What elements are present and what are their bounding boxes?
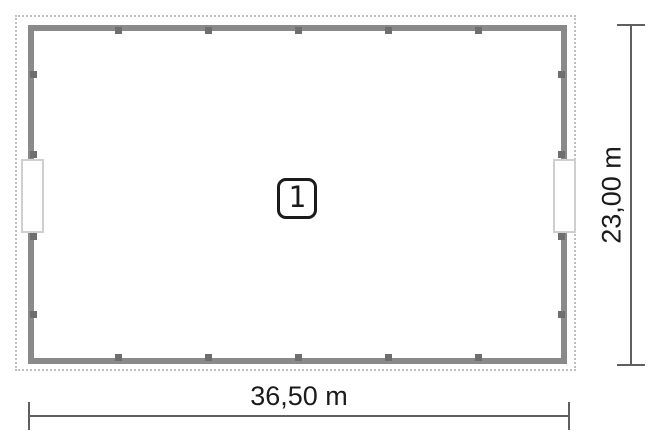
room-number-badge: 1 — [277, 178, 317, 219]
column-marker — [115, 27, 122, 34]
column-marker — [558, 233, 565, 240]
column-marker — [115, 354, 122, 361]
column-marker — [475, 354, 482, 361]
floor-plan-canvas: 1 36,50 m 23,00 m — [0, 0, 660, 444]
column-marker — [475, 27, 482, 34]
width-dimension-label: 36,50 m — [29, 381, 569, 412]
column-marker — [205, 27, 212, 34]
column-marker — [30, 233, 37, 240]
column-marker — [558, 151, 565, 158]
column-marker — [558, 71, 565, 78]
height-dimension-tick-bottom — [617, 364, 645, 366]
column-marker — [385, 354, 392, 361]
column-marker — [295, 27, 302, 34]
gate-opening-left — [21, 159, 44, 233]
column-marker — [205, 354, 212, 361]
column-marker — [30, 311, 37, 318]
column-marker — [385, 27, 392, 34]
room-number-label: 1 — [288, 183, 305, 212]
column-marker — [30, 151, 37, 158]
column-marker — [30, 71, 37, 78]
height-dimension-label: 23,00 m — [597, 146, 628, 244]
gate-opening-right — [553, 159, 576, 233]
height-dimension-line — [630, 24, 632, 366]
width-dimension-line — [29, 415, 569, 417]
column-marker — [558, 311, 565, 318]
column-marker — [295, 354, 302, 361]
height-dimension-tick-top — [617, 24, 645, 26]
